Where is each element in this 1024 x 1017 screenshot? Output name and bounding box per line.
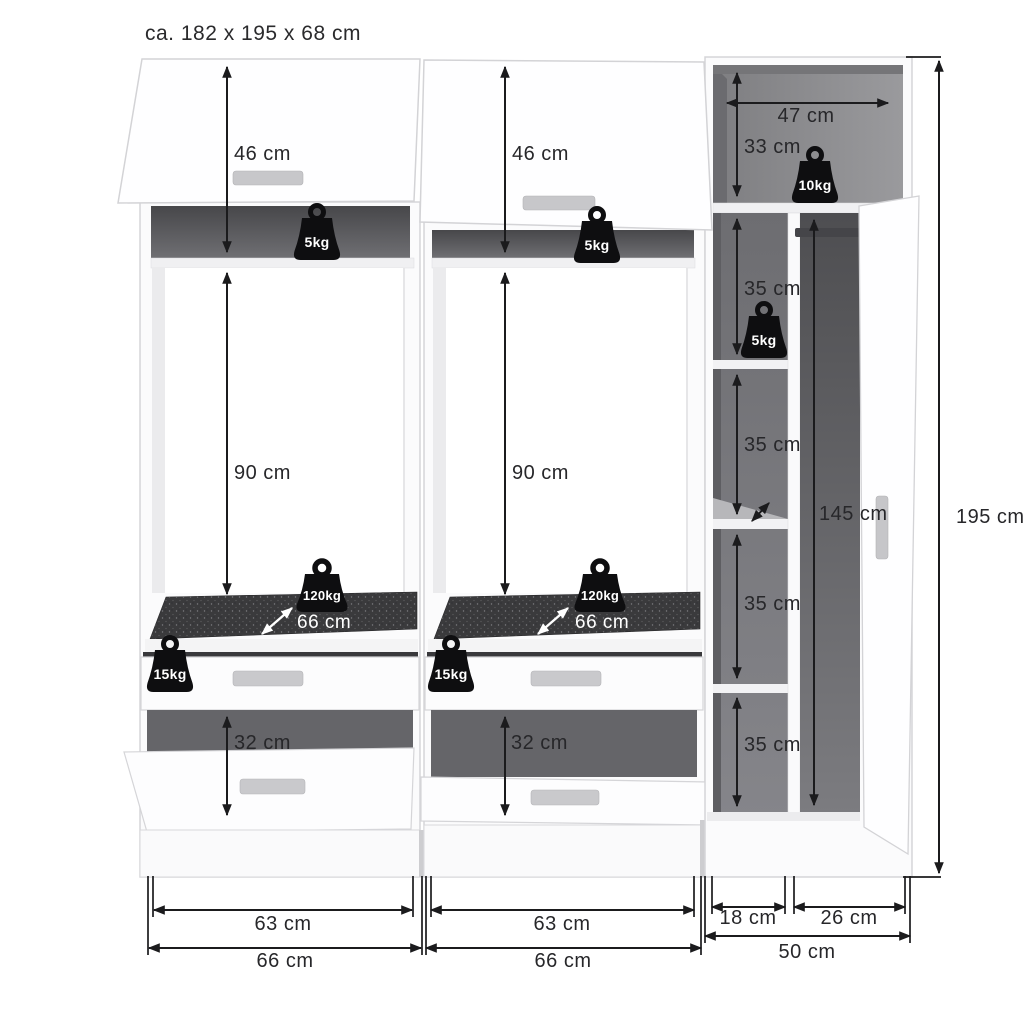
diagram-title: ca. 182 x 195 x 68 cm: [145, 22, 361, 45]
diagram-canvas: 5kg 5kg 120kg 120kg 15kg 15kg 10kg 5kg: [0, 0, 1024, 1017]
left-unit-shelf-front-edge: [145, 639, 418, 652]
middle-unit-open-drawer-handle: [531, 790, 599, 805]
label-left-mat-depth: 66 cm: [297, 612, 351, 633]
label-left-interior-height: 90 cm: [234, 462, 291, 484]
middle-unit-top-shelf: [432, 258, 695, 268]
weight-label: 120kg: [581, 588, 619, 603]
weight-label: 10kg: [798, 177, 831, 193]
label-compartment-2: 35 cm: [744, 434, 801, 456]
weight-label: 120kg: [303, 588, 341, 603]
right-unit-shelf-3: [713, 684, 788, 693]
furniture-dimension-diagram: 5kg 5kg 120kg 120kg 15kg 15kg 10kg 5kg: [0, 0, 1024, 1017]
left-unit-top-compartment: [151, 206, 410, 258]
right-unit-niche-side-shade: [713, 65, 727, 203]
weight-label: 5kg: [584, 237, 609, 253]
label-left-interior-width: 63 cm: [255, 913, 312, 935]
middle-unit-drawer-gap: [427, 652, 702, 657]
label-shelf-column-width: 18 cm: [720, 907, 777, 929]
label-middle-interior-width: 63 cm: [534, 913, 591, 935]
left-unit-drawer-handle: [233, 671, 303, 686]
label-right-unit-width: 50 cm: [779, 941, 836, 963]
right-unit-shelf-2: [713, 519, 788, 529]
middle-unit-flap-door-handle: [523, 196, 595, 210]
label-middle-compartment-height: 32 cm: [511, 732, 568, 754]
label-compartment-1: 35 cm: [744, 278, 801, 300]
label-middle-door-height: 46 cm: [512, 143, 569, 165]
left-unit-plinth: [140, 830, 420, 877]
left-unit-open-interior: [152, 268, 405, 593]
label-hanging-column-width: 26 cm: [821, 907, 878, 929]
label-hanging-height: 145 cm: [819, 503, 888, 525]
right-unit-shelf-1: [713, 360, 788, 369]
weight-label: 15kg: [153, 666, 186, 682]
label-left-compartment-height: 32 cm: [234, 732, 291, 754]
label-left-unit-width: 66 cm: [257, 950, 314, 972]
right-unit-door: [859, 196, 919, 854]
label-middle-mat-depth: 66 cm: [575, 612, 629, 633]
label-middle-interior-height: 90 cm: [512, 462, 569, 484]
middle-unit: [419, 202, 709, 877]
right-unit-divider-wall: [788, 213, 800, 817]
clothes-rail: [795, 228, 862, 237]
left-unit-tilt-door-handle: [240, 779, 305, 794]
label-left-door-height: 46 cm: [234, 143, 291, 165]
right-unit-niche-top-shade: [713, 65, 903, 74]
label-niche-width: 47 cm: [778, 105, 835, 127]
weight-label: 5kg: [304, 234, 329, 250]
middle-unit-top-compartment: [432, 230, 694, 258]
label-niche-height: 33 cm: [744, 136, 801, 158]
weight-label: 5kg: [751, 332, 776, 348]
middle-unit-shelf-front-edge: [428, 639, 702, 652]
middle-unit-drawer-handle: [531, 671, 601, 686]
left-unit-top-shelf: [151, 258, 414, 268]
right-unit-floor-edge: [707, 812, 860, 821]
left-unit-side-wall-shade: [152, 268, 165, 593]
label-compartment-3: 35 cm: [744, 593, 801, 615]
label-compartment-4: 35 cm: [744, 734, 801, 756]
left-unit-flap-door-handle: [233, 171, 303, 185]
middle-unit-plinth: [424, 825, 705, 877]
weight-label: 15kg: [434, 666, 467, 682]
middle-unit-side-wall-shade: [433, 268, 446, 593]
label-total-height: 195 cm: [956, 506, 1024, 528]
middle-unit-open-interior: [433, 268, 686, 593]
label-middle-unit-width: 66 cm: [535, 950, 592, 972]
